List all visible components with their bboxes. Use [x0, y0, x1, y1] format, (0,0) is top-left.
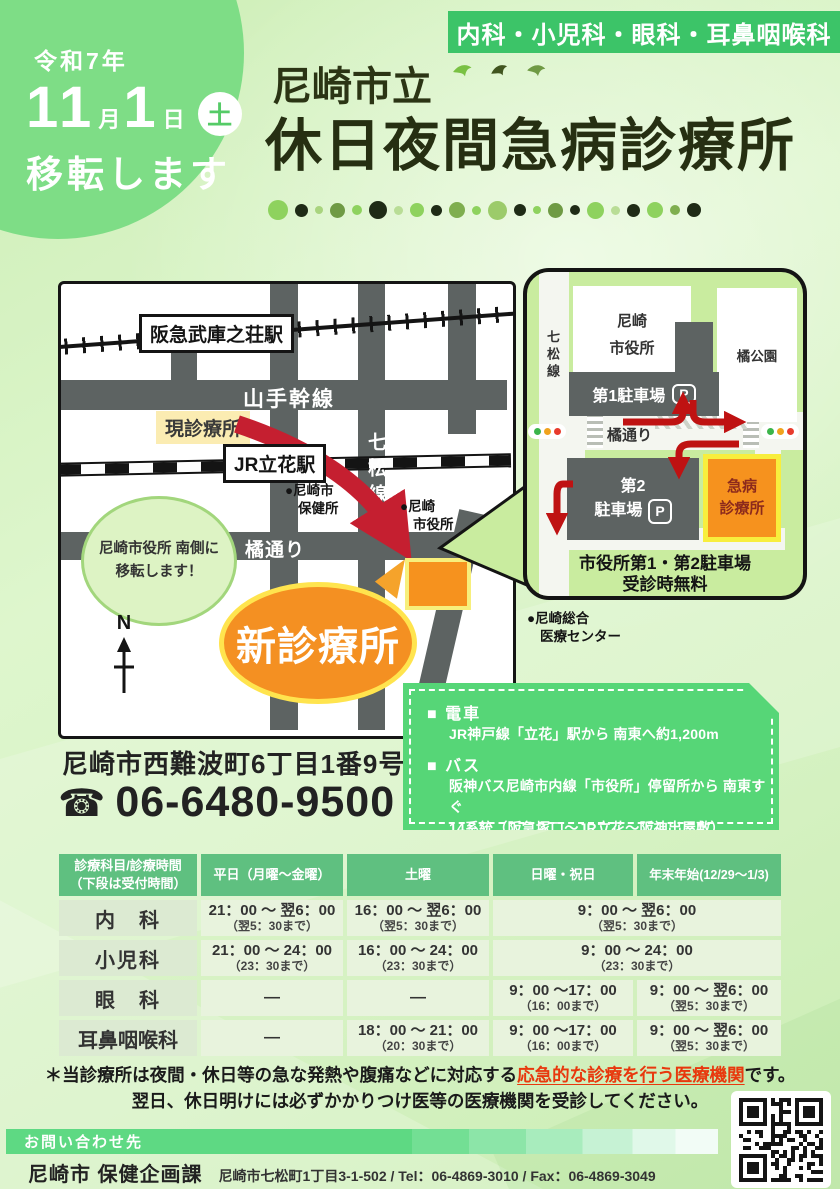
- decor-dot: [394, 206, 403, 215]
- decor-dot: [570, 205, 580, 215]
- table-row: 耳鼻咽喉科 ― 18：00 ～ 21：00（20：30まで） 9：00 ～17：…: [59, 1020, 781, 1056]
- phone-number: 06-6480-9500: [115, 778, 395, 827]
- decor-dot: [330, 203, 345, 218]
- station-hankyu-mukonoso: 阪急武庫之荘駅: [139, 314, 294, 353]
- decor-dot: [611, 206, 620, 215]
- decor-dot: [449, 202, 465, 218]
- decor-dot: [431, 205, 442, 216]
- month-unit: 月: [98, 102, 120, 134]
- poi-health-center: ●尼崎市 保健所: [285, 482, 339, 517]
- month-number: 11: [26, 74, 95, 141]
- bird-icons: [452, 62, 551, 82]
- page-title: 休日夜間急病診療所: [265, 100, 796, 182]
- specialties-badge: 内科・小児科・眼科・耳鼻咽喉科: [448, 11, 840, 53]
- contact-section-label: お問い合わせ先: [24, 1131, 143, 1152]
- decor-dot: [472, 206, 481, 215]
- decor-dot: [587, 202, 604, 219]
- new-clinic-bubble: 新診療所: [219, 582, 417, 704]
- bird-icon: [490, 62, 514, 81]
- dept-ophthalmology: 眼 科: [59, 980, 197, 1016]
- header-yearend: 年末年始(12/29～1/3): [637, 854, 781, 896]
- clinic-phone: ☎ 06-6480-9500: [58, 778, 395, 827]
- dept-internal-medicine: 内 科: [59, 900, 197, 936]
- station-jr-tachibana: JR立花駅: [223, 444, 326, 483]
- decor-dot: [295, 204, 308, 217]
- decor-dot: [533, 206, 541, 214]
- dept-pediatrics: 小児科: [59, 940, 197, 976]
- decor-dot: [488, 201, 507, 220]
- decor-dot: [514, 204, 526, 216]
- qr-code: [731, 1091, 831, 1188]
- north-arrow-icon: [111, 635, 137, 697]
- day-number: 1: [123, 74, 159, 141]
- decor-dot: [687, 203, 701, 217]
- decor-dot: [268, 200, 288, 220]
- inset-map: 尼崎 市役所 橘公園 第1駐車場 P 第2 駐車場 P 急病 診療所 橘通り 七…: [523, 268, 807, 600]
- move-date: 11 月 1 日 土: [26, 74, 242, 141]
- flyer-page: 令和7年 11 月 1 日 土 移転します 内科・小児科・眼科・耳鼻咽喉科 尼崎…: [0, 0, 840, 1189]
- emphasis-red-text: 応急的な診療を行う医療機関: [517, 1065, 745, 1085]
- decor-dot: [369, 201, 387, 219]
- decor-dot: [352, 205, 362, 215]
- access-bus-text: 阪神バス尼崎市内線「市役所」停留所から 南東すぐ 14系統（阪急塚口～JR立花～…: [449, 776, 779, 860]
- decor-dot: [647, 202, 663, 218]
- era-label: 令和7年: [34, 42, 128, 76]
- clinic-address: 尼崎市西難波町6丁目1番9号: [62, 744, 405, 781]
- decor-dot: [627, 204, 640, 217]
- decor-dot: [410, 203, 424, 217]
- header-sunday-holiday: 日曜・祝日: [493, 854, 633, 896]
- table-row: 内 科 21：00 ～ 翌6：00（翌5：30まで） 16：00 ～ 翌6：00…: [59, 900, 781, 936]
- decor-dot: [548, 203, 563, 218]
- schedule-table: 診療科目/診療時間 （下段は受付時間） 平日（月曜～金曜） 土曜 日曜・祝日 年…: [55, 850, 785, 1060]
- header-saturday: 土曜: [347, 854, 489, 896]
- organization-contact-details: 尼崎市七松町1丁目3-1-502 / Tel：06-4869-3010 / Fa…: [219, 1166, 656, 1186]
- bird-icon: [526, 62, 551, 82]
- table-row: 眼 科 ― ― 9：00 ～17：00（16：00まで） 9：00 ～ 翌6：0…: [59, 980, 781, 1016]
- bird-icon: [452, 62, 478, 82]
- dept-otolaryngology: 耳鼻咽喉科: [59, 1020, 197, 1056]
- disclaimer-note: ＊当診療所は夜間・休日等の急な発熱や腹痛などに対応する応急的な診療を行う医療機関…: [0, 1062, 840, 1115]
- table-row: 小児科 21：00 ～ 24：00（23：30まで） 16：00 ～ 24：00…: [59, 940, 781, 976]
- phone-icon: ☎: [58, 781, 105, 825]
- decor-dots: [268, 196, 833, 224]
- header-department: 診療科目/診療時間 （下段は受付時間）: [59, 854, 197, 896]
- poi-medical-center: ●尼崎総合 医療センター: [527, 610, 621, 646]
- access-bus-label: ■ バス: [427, 752, 779, 776]
- north-compass: N: [107, 612, 141, 702]
- header-weekday: 平日（月曜～金曜）: [201, 854, 343, 896]
- organization-name: 尼崎市 保健企画課: [28, 1158, 203, 1187]
- weekday-badge: 土: [198, 92, 242, 136]
- table-header-row: 診療科目/診療時間 （下段は受付時間） 平日（月曜～金曜） 土曜 日曜・祝日 年…: [59, 854, 781, 896]
- decor-dot: [670, 205, 680, 215]
- move-message: 移転します: [26, 144, 231, 198]
- inset-route-arrows: [527, 272, 803, 596]
- decor-dot: [315, 206, 323, 214]
- contact-section-bar: お問い合わせ先: [6, 1129, 718, 1154]
- footer-contact-line: 尼崎市 保健企画課 尼崎市七松町1丁目3-1-502 / Tel：06-4869…: [28, 1158, 656, 1187]
- day-unit: 日: [163, 102, 185, 134]
- move-note-circle: 尼崎市役所 南側に 移転します！: [81, 496, 237, 626]
